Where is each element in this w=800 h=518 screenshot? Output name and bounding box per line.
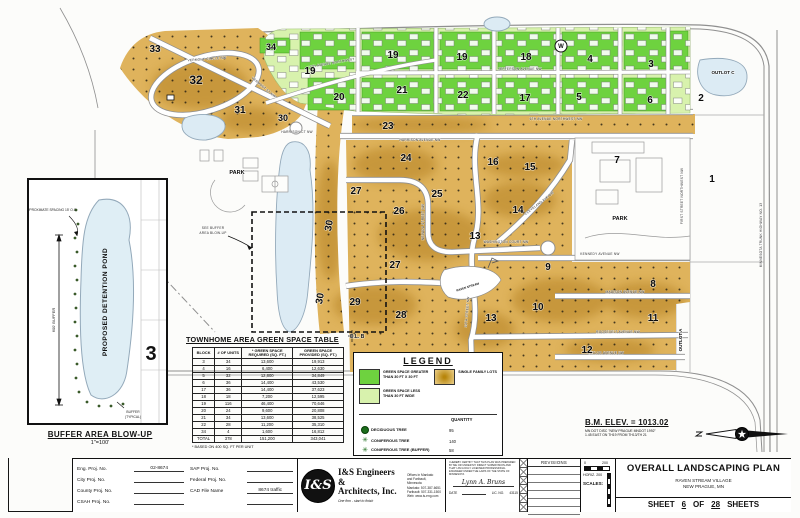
block-label: 10	[532, 302, 544, 313]
coniferous-buffer-label: CONIFEROUS TREE (BUFFER)	[371, 448, 449, 453]
federal-proj-label: Federal Proj. No.	[190, 478, 247, 483]
legend-swatches: GREEN SPACE GREATER THAN 30 FT X 30 FT G…	[359, 369, 497, 415]
block-label: 2	[698, 93, 704, 104]
block-label: 7	[614, 155, 620, 166]
sheet-number: 6	[682, 500, 686, 509]
revision-check-column	[519, 459, 527, 512]
pond-label: PROPOSED DETENTION POND	[102, 248, 109, 356]
legend-lgreen-line1: GREEN SPACE LESS	[383, 389, 420, 393]
legend-green-line1: GREEN SPACE GREATER	[383, 370, 428, 374]
block-label: 27	[350, 186, 362, 197]
legend-row-coniferous-buffer: ✳ CONIFEROUS TREE (BUFFER) 58	[359, 448, 497, 454]
table-row: 20249,60020,808	[193, 408, 344, 415]
buffer-typical-label-1: BUFFER	[126, 410, 140, 414]
legend-green-line2: THAN 30 FT X 30 FT	[383, 375, 418, 379]
block-label: 22	[457, 90, 469, 101]
titleblock-margin	[8, 458, 72, 512]
legend-panel: LEGEND GREEN SPACE GREATER THAN 30 FT X …	[353, 352, 503, 456]
block-label: 26	[393, 206, 405, 217]
table-row: 33413,60019,913	[193, 359, 344, 366]
block-label: 9	[545, 262, 551, 273]
street-label: TAYLOR AVENUE NW	[588, 351, 624, 355]
sheet-title: OVERALL LANDSCAPING PLAN	[616, 459, 791, 474]
sheet-label: SHEET	[648, 500, 675, 509]
coniferous-tree-icon: ✳	[359, 438, 371, 444]
block-label: 30	[278, 113, 288, 123]
block-label: 11	[648, 313, 659, 324]
firm-name-line2: Architects, Inc.	[338, 487, 404, 496]
project-numbers-block: Eng. Proj. No. 02-8674 SAP Proj. No. Cit…	[72, 458, 297, 512]
buffer-blowup-panel: PROPOSED DETENTION POND 600' BUFFER APPR…	[27, 178, 168, 425]
townhome-area	[260, 27, 690, 115]
table-row: TOTAL378151,200343,041	[193, 436, 344, 443]
project-location: NEW PRAGUE, MN	[616, 484, 791, 490]
street-label: SEE BUFFER	[202, 226, 225, 230]
block-label: 25	[431, 189, 443, 200]
deciduous-tree-icon	[361, 426, 369, 434]
lic-number: 43115	[509, 491, 518, 495]
block-label: 20	[333, 92, 345, 103]
block-label: OUTLOT A	[678, 328, 683, 352]
table-row: 213413,60038,525	[193, 415, 344, 422]
street-label: ROOSEVELT AVENUE NW	[596, 330, 640, 334]
street-label: WASHINGTON COURT NW	[484, 240, 529, 244]
col-units: # OF UNITS	[215, 348, 242, 359]
firm-info-line2: and Faribault, Minnesota	[407, 477, 442, 486]
csah-proj-value	[134, 504, 184, 505]
block-label: 8	[650, 279, 656, 290]
street-label: KENNEDY AVENUE NW	[580, 252, 619, 256]
block-label: 18	[520, 52, 532, 63]
block-label: 24	[400, 153, 412, 164]
lic-label: LIC. NO.	[492, 491, 504, 495]
block-label: 19	[387, 50, 399, 61]
table-footnote: * BASED ON 400 SQ. FT PER UNIT	[192, 445, 348, 449]
block-label: 15	[524, 162, 536, 173]
block-label: 12	[581, 345, 593, 356]
col-provided: GREEN SPACE PROVIDED (SQ. FT.)	[293, 348, 344, 359]
blowup-block-number: 3	[145, 343, 156, 365]
coniferous-label: CONIFEROUS TREE	[371, 439, 449, 444]
street-label: HARRISON AVENUE NW	[399, 138, 440, 142]
legend-item-light-green: GREEN SPACE LESS THAN 30 FT WIDE	[359, 388, 428, 404]
buffer-typical-label-2: (TYPICAL)	[125, 415, 141, 419]
block-label: 1	[709, 174, 715, 185]
scale-zero: 0	[584, 461, 586, 465]
block-label: 34	[266, 42, 276, 52]
street-label: FIRST STREET NORTHWEST NW	[680, 168, 684, 224]
street-label: MADISON AVENUE NW	[606, 290, 645, 294]
block-label: 27	[389, 260, 401, 271]
block-label: OUTLOT C	[712, 70, 736, 75]
block-label: 14	[512, 205, 524, 216]
street-label: MINNESOTA TRUNK HIGHWAY NO. 13	[759, 203, 763, 268]
light-green-space-swatch	[359, 388, 380, 404]
block-label: 31	[234, 105, 246, 116]
scale-max: 200	[602, 461, 608, 465]
block-label: 19	[456, 52, 468, 63]
green-space-table: BLOCK # OF UNITS * GREEN SPACE REQUIRED …	[192, 347, 344, 443]
of-label: OF	[693, 500, 704, 509]
col-required: * GREEN SPACE REQUIRED (SQ. FT.)	[242, 348, 293, 359]
buffer-blowup-drawing: PROPOSED DETENTION POND 600' BUFFER APPR…	[29, 180, 166, 423]
eng-proj-value: 02-8674	[134, 466, 184, 472]
coniferous-buffer-qty: 58	[449, 448, 454, 453]
vertical-scale-bar	[607, 473, 612, 507]
table-row: 53212,80034,849	[193, 373, 344, 380]
horiz-label: HORIZ.	[583, 473, 595, 477]
block-label: 16	[487, 157, 499, 168]
block-label: 33	[149, 44, 161, 55]
sheet-title-block: OVERALL LANDSCAPING PLAN RAVEN STREAM VI…	[615, 458, 791, 512]
quantity-header: QUANTITY	[451, 417, 497, 422]
blowup-title-text: BUFFER AREA BLOW-UP	[20, 430, 180, 439]
table-row: 222811,20035,310	[193, 422, 344, 429]
title-block: Eng. Proj. No. 02-8674 SAP Proj. No. Cit…	[8, 458, 791, 512]
legend-single-family-label: SINGLE FAMILY LOTS	[458, 369, 497, 375]
sheets-label: SHEETS	[727, 500, 759, 509]
csah-proj-label: CSAH Proj. No.	[77, 500, 134, 505]
federal-proj-value	[247, 482, 293, 483]
block-label: 19	[304, 66, 316, 77]
cad-file-label: CAD File Name	[190, 489, 247, 494]
street-label: NEVADA STREET NW	[421, 204, 425, 240]
street-label: AREA BLOW-UP	[199, 231, 226, 235]
legend-item-single-family: SINGLE FAMILY LOTS	[434, 369, 497, 385]
spacing-label: APPROXIMATE SPACING 15' O.C.	[29, 208, 77, 212]
deciduous-qty: 95	[449, 428, 454, 433]
block-label: 13	[485, 313, 497, 324]
table-title: TOWNHOME AREA GREEN SPACE TABLE	[186, 335, 348, 344]
deciduous-label: DECIDUOUS TREE	[371, 428, 449, 433]
city-proj-label: City Proj. No.	[77, 478, 134, 483]
sap-proj-value	[247, 471, 293, 472]
date-label: DATE	[449, 491, 457, 495]
certification-statement: I hereby certify that this plan was prep…	[449, 461, 518, 477]
block-label: 17	[519, 93, 531, 104]
block-label: PARK	[612, 216, 627, 222]
block-label: 13	[469, 231, 481, 242]
table-row: 3441,60016,812	[193, 429, 344, 436]
street-label: 6TH AVENUE NORTHWEST NW	[530, 117, 583, 121]
firm-name-line1: I&S Engineers &	[338, 468, 404, 487]
green-space-table-body: 33413,60019,9134166,40012,63053212,80034…	[193, 359, 344, 443]
block-label: PARK	[229, 170, 244, 176]
table-row: 1911646,40070,646	[193, 401, 344, 408]
eng-proj-label: Eng. Proj. No.	[77, 467, 134, 472]
block-label: 6	[647, 95, 653, 106]
green-space-swatch	[359, 369, 380, 385]
table-row: 18187,20012,595	[193, 394, 344, 401]
firm-block: I&S I&S Engineers & Architects, Inc. One…	[297, 458, 445, 512]
legend-quantities: QUANTITY DECIDUOUS TREE 95 ✳ CONIFEROUS …	[359, 417, 497, 454]
block-label: 21	[396, 85, 408, 96]
table-row: 173614,40037,623	[193, 387, 344, 394]
firm-logo: I&S	[301, 469, 335, 503]
cad-file-value: 8674 traffic	[247, 488, 293, 494]
buffer-dimension-label: 600' BUFFER	[51, 308, 56, 333]
street-label: JEFFERSON AVENUE NW	[498, 67, 541, 71]
city-proj-value	[134, 482, 184, 483]
landscaping-plan-sheet: VERMONT CIRCLE NWVERMONT ST NW7TH AVENUE…	[0, 0, 800, 518]
legend-row-deciduous: DECIDUOUS TREE 95	[359, 426, 497, 435]
coniferous-qty: 140	[449, 439, 456, 444]
table-row: 4166,40012,630	[193, 366, 344, 373]
county-proj-label: County Proj. No.	[77, 489, 134, 494]
sap-proj-label: SAP Proj. No.	[190, 467, 247, 472]
county-proj-value	[134, 493, 184, 494]
block-label: 28	[395, 310, 407, 321]
street-label: HARRISON CT NW	[281, 130, 313, 134]
revisions-block: REVISIONS	[527, 458, 580, 512]
block-label: 29	[349, 297, 361, 308]
scale-bar	[584, 466, 610, 471]
sheet-total: 28	[711, 500, 720, 509]
north-arrow-icon	[692, 423, 792, 445]
firm-tagline: One firm - start to finish	[338, 499, 404, 503]
block-label: W	[558, 44, 564, 50]
legend-title: LEGEND	[359, 356, 497, 366]
revisions-header: REVISIONS	[528, 459, 580, 467]
blowup-title: BUFFER AREA BLOW-UP 1"=100'	[20, 430, 180, 446]
firm-info-line5: Web: www.is-eng.com	[407, 494, 442, 498]
coniferous-buffer-tree-icon: ✳	[359, 448, 371, 454]
block-label: 3	[648, 59, 654, 70]
table-row: 63614,40043,530	[193, 380, 344, 387]
certification-block: I hereby certify that this plan was prep…	[445, 458, 527, 512]
block-label: O.L. B	[350, 334, 365, 340]
legend-lgreen-line2: THAN 30 FT WIDE	[383, 394, 415, 398]
legend-item-green: GREEN SPACE GREATER THAN 30 FT X 30 FT	[359, 369, 428, 385]
block-label: 32	[189, 73, 203, 87]
scales-block: 0 200 HORIZ. 200 SCALES:	[580, 458, 615, 512]
firm-contact: Offices in Mankato and Faribault, Minnes…	[407, 473, 442, 499]
block-label: 4	[587, 54, 593, 65]
horiz-value: 200	[596, 473, 602, 477]
col-block: BLOCK	[193, 348, 215, 359]
date-value	[462, 494, 486, 495]
block-label: 23	[382, 121, 394, 132]
single-family-swatch	[434, 369, 455, 385]
engineer-signature: Lynn A. Bruns	[453, 479, 514, 487]
green-space-table-panel: TOWNHOME AREA GREEN SPACE TABLE BLOCK # …	[186, 335, 348, 449]
legend-row-coniferous: ✳ CONIFEROUS TREE 140	[359, 438, 497, 444]
blowup-scale: 1"=100'	[20, 440, 180, 446]
block-label: 5	[576, 92, 582, 103]
